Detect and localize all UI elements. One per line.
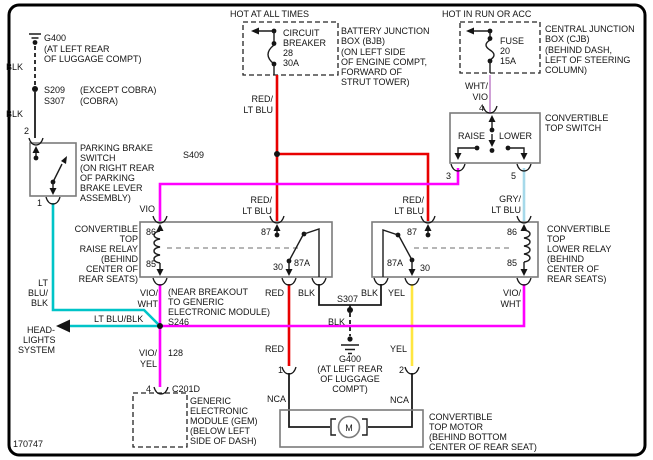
wire-label-vioyel: YEL	[140, 359, 157, 369]
splice-dot-s409	[274, 151, 280, 157]
lower-relay-note: LOWER RELAY	[547, 244, 611, 254]
lower-relay-pin-87: 87	[407, 227, 417, 237]
wire-label-ltblu: LT BLU	[243, 105, 273, 115]
bjb-note: FORWARD OF	[341, 67, 402, 77]
wire-label-vioyel: VIO/	[139, 348, 158, 358]
ground-icon-g400-bottom	[341, 336, 359, 353]
headlights-note: LIGHTS	[23, 335, 56, 345]
wire-label-blk: BLK	[328, 317, 345, 327]
wire-label-ltblublk: LT	[38, 278, 48, 288]
bjb-note: STRUT TOWER)	[341, 77, 410, 87]
diagram-id: 170747	[13, 439, 43, 449]
gem-note: (BELOW LEFT	[190, 426, 251, 436]
splice-s409-name: S409	[183, 150, 204, 160]
bjb-hot-label: HOT AT ALL TIMES	[230, 9, 309, 19]
splice-s246-name: S246	[168, 317, 189, 327]
motor-note: CONVERTIBLE	[429, 412, 492, 422]
top-switch-note: TOP SWITCH	[545, 123, 601, 133]
wire-label-viowht: WHT	[501, 299, 522, 309]
cjb-note: LEFT OF STEERING	[545, 55, 630, 65]
gem-circuit-number: 128	[168, 348, 183, 358]
wire-label-ltblublk: BLU/	[28, 288, 49, 298]
wire-label-ltblu: LT BLU	[491, 205, 521, 215]
cjb-note: BOX (CJB)	[545, 34, 590, 44]
wire-label-blk: BLK	[6, 109, 23, 119]
parking-brake-note: (ON RIGHT REAR	[80, 163, 155, 173]
wire-label-ltblu: LT BLU	[394, 206, 424, 216]
top-switch-note: CONVERTIBLE	[545, 113, 608, 123]
cjb-note: CENTRAL JUNCTION	[545, 24, 635, 34]
ground-bottom-name: G400	[339, 354, 361, 364]
lower-relay-pin-86: 86	[507, 227, 517, 237]
lower-relay-pin-87a: 87A	[387, 258, 403, 268]
wire-label-red: RED/	[250, 195, 272, 205]
gem-pin-4: 4	[146, 384, 151, 394]
wire-label-viowht: VIO/	[503, 288, 522, 298]
motor-symbol-label: M	[345, 423, 353, 433]
wire-label-yel: YEL	[388, 288, 405, 298]
raise-relay-pin-86: 86	[146, 227, 156, 237]
parking-brake-note: SWITCH	[80, 153, 116, 163]
gem-connector: C201D	[172, 384, 201, 394]
splice-s209-name: S209	[44, 85, 65, 95]
lower-relay-note: CENTER OF	[547, 264, 600, 274]
splice-s246-note: TO GENERIC	[168, 297, 224, 307]
lower-relay-note: (BEHIND	[547, 254, 585, 264]
bjb-device: 30A	[283, 58, 299, 68]
gem-note: MODULE (GEM)	[190, 416, 258, 426]
raise-relay-note: CENTER OF	[86, 264, 139, 274]
parking-brake-pin-1: 1	[37, 198, 42, 208]
lower-relay-pin-30: 30	[420, 263, 430, 273]
lower-relay-note: TOP	[547, 234, 565, 244]
wire-label-wht: WHT/	[465, 81, 488, 91]
wire-label-red: RED	[265, 288, 285, 298]
cjb-hot-label: HOT IN RUN OR ACC	[442, 9, 532, 19]
parking-brake-switch-contacts	[33, 146, 68, 195]
gem-box	[133, 393, 187, 447]
motor-note: (BEHIND BOTTOM	[429, 432, 507, 442]
wire-label-blk: BLK	[6, 62, 23, 72]
motor-nca-left: NCA	[267, 394, 286, 404]
lower-relay-pin-85: 85	[507, 258, 517, 268]
wire-label-red: RED/	[251, 94, 273, 104]
motor-pin-1: 1	[278, 365, 283, 375]
wire-label-blk: BLK	[298, 288, 315, 298]
raise-relay-note: REAR SEATS)	[79, 274, 138, 284]
ground-bottom-note: COMPT)	[332, 384, 368, 394]
bjb-device: 28	[283, 48, 293, 58]
splice-s307a-name: S307	[44, 96, 65, 106]
bjb-note: BATTERY JUNCTION	[341, 26, 430, 36]
wire-label-ltblu: LT BLU	[242, 206, 272, 216]
wire-label-yel: YEL	[390, 344, 407, 354]
splice-dot-s307	[347, 307, 353, 313]
raise-relay-pin-85: 85	[146, 259, 156, 269]
wire-label-viowht: WHT	[138, 299, 159, 309]
parking-brake-note: BRAKE LEVER	[80, 183, 143, 193]
cjb-note: COLUMN)	[545, 65, 587, 75]
gem-note: ELECTRONIC	[190, 406, 249, 416]
splice-s246-note: ELECTRONIC MODULE)	[168, 307, 270, 317]
bjb-note: OF ENGINE COMPT,	[341, 57, 427, 67]
splice-s246-note: (NEAR BREAKOUT	[168, 287, 249, 297]
top-switch-lower-label: LOWER	[499, 131, 533, 141]
wire-label-vio: VIO	[472, 92, 488, 102]
parking-brake-note: PARKING BRAKE	[80, 143, 153, 153]
bjb-note: (ON LEFT SIDE	[341, 47, 405, 57]
lower-relay-note: REAR SEATS)	[547, 274, 606, 284]
cjb-device: 15A	[500, 56, 516, 66]
ground-bottom-note: OF LUGGAGE	[320, 374, 380, 384]
parking-brake-note: OF PARKING	[80, 173, 135, 183]
parking-brake-note: ASSEMBLY)	[80, 193, 131, 203]
motor-pin-2: 2	[399, 365, 404, 375]
raise-relay-pin-87: 87	[261, 227, 271, 237]
ground-top-note: (AT LEFT REAR	[44, 44, 110, 54]
splice-s209-note: (EXCEPT COBRA)	[80, 85, 156, 95]
lower-relay-note: CONVERTIBLE	[547, 224, 610, 234]
top-switch-pin-5: 5	[511, 171, 516, 181]
top-switch-pin-4: 4	[479, 103, 484, 113]
raise-relay-note: (BEHIND	[101, 254, 139, 264]
ground-top-name: G400	[44, 33, 66, 43]
bjb-device: CIRCUIT	[283, 28, 320, 38]
top-switch-raise-label: RAISE	[458, 131, 485, 141]
wire-label-vio: VIO	[139, 204, 155, 214]
top-switch-pin-3: 3	[446, 171, 451, 181]
wire-label-viowht: VIO/	[140, 288, 159, 298]
motor-note: TOP MOTOR	[429, 422, 484, 432]
gem-note: SIDE OF DASH)	[190, 436, 257, 446]
ground-icon-g400-top	[29, 34, 41, 45]
raise-relay-note: RAISE RELAY	[80, 244, 138, 254]
wire-label-red: RED/	[402, 195, 424, 205]
parking-brake-pin-2: 2	[24, 126, 29, 136]
raise-relay-internals	[154, 224, 319, 277]
bjb-note: BOX (BJB)	[341, 36, 385, 46]
motor-nca-right: NCA	[390, 395, 409, 405]
gem-note: GENERIC	[190, 396, 232, 406]
splice-dot-s209	[32, 86, 38, 92]
wire-label-red: RED	[265, 344, 285, 354]
motor-note: CENTER OF REAR SEAT)	[429, 442, 537, 452]
wire-label-ltblublk: BLK	[31, 298, 48, 308]
raise-relay-note: CONVERTIBLE	[75, 224, 138, 234]
wire-label-ltblublk-h: LT BLU/BLK	[94, 314, 143, 324]
ground-top-note: OF LUGGAGE COMPT)	[44, 54, 142, 64]
raise-relay-box	[140, 222, 332, 277]
raise-relay-pin-87a: 87A	[294, 258, 310, 268]
ground-bottom-note: (AT LEFT REAR	[317, 364, 383, 374]
cjb-device: 20	[500, 46, 510, 56]
splice-s307a-note: (COBRA)	[80, 96, 118, 106]
bjb-device: BREAKER	[283, 38, 327, 48]
cjb-note: (BEHIND DASH,	[545, 45, 612, 55]
headlights-note: SYSTEM	[18, 345, 55, 355]
headlights-arrow-icon	[56, 320, 70, 333]
wiring-diagram-page: M G400 (AT LEFT REAR OF LUGGAGE CO	[0, 0, 653, 460]
raise-relay-note: TOP	[120, 234, 138, 244]
splice-s307b-name: S307	[337, 294, 358, 304]
headlights-note: HEAD-	[27, 325, 55, 335]
fuse-icon	[466, 28, 494, 74]
cjb-device: FUSE	[500, 36, 524, 46]
splice-dot-s246	[157, 323, 163, 329]
wire-label-gry: GRY/	[499, 194, 521, 204]
wire-label-blk: BLK	[361, 288, 378, 298]
raise-relay-pin-30: 30	[273, 262, 283, 272]
circuit-breaker-icon	[251, 28, 276, 76]
